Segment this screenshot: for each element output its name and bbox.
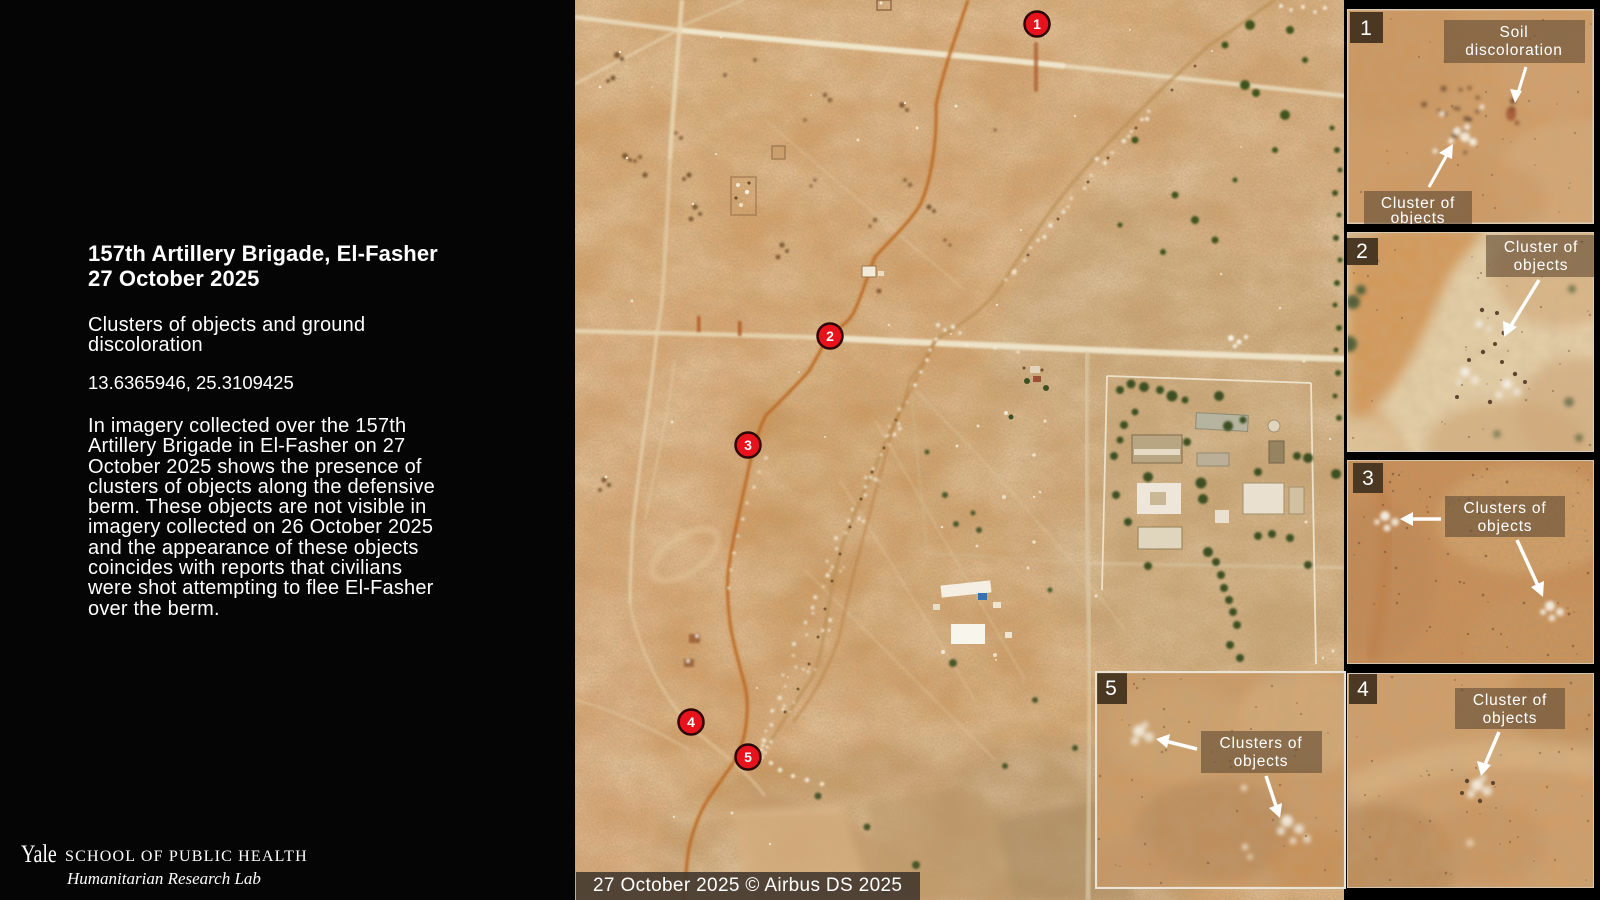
svg-text:5: 5	[1105, 677, 1117, 700]
svg-text:4: 4	[1357, 678, 1369, 701]
svg-text:objects: objects	[1483, 710, 1538, 727]
svg-text:3: 3	[744, 437, 752, 453]
svg-text:4: 4	[687, 714, 695, 730]
svg-text:2: 2	[826, 328, 834, 344]
svg-text:objects: objects	[1234, 753, 1289, 770]
svg-text:1: 1	[1360, 17, 1372, 40]
svg-text:Clusters of: Clusters of	[1220, 735, 1303, 752]
svg-text:5: 5	[744, 749, 752, 765]
svg-text:3: 3	[1362, 467, 1374, 490]
svg-text:Clusters of: Clusters of	[1464, 500, 1547, 517]
svg-text:objects: objects	[1514, 257, 1569, 274]
svg-text:Cluster of: Cluster of	[1504, 239, 1578, 256]
svg-text:2: 2	[1356, 240, 1368, 263]
svg-text:objects: objects	[1391, 210, 1446, 224]
svg-text:1: 1	[1033, 16, 1041, 32]
svg-text:discoloration: discoloration	[1465, 42, 1562, 59]
svg-text:Soil: Soil	[1499, 24, 1528, 41]
svg-text:objects: objects	[1478, 518, 1533, 535]
svg-text:Cluster of: Cluster of	[1473, 692, 1547, 709]
